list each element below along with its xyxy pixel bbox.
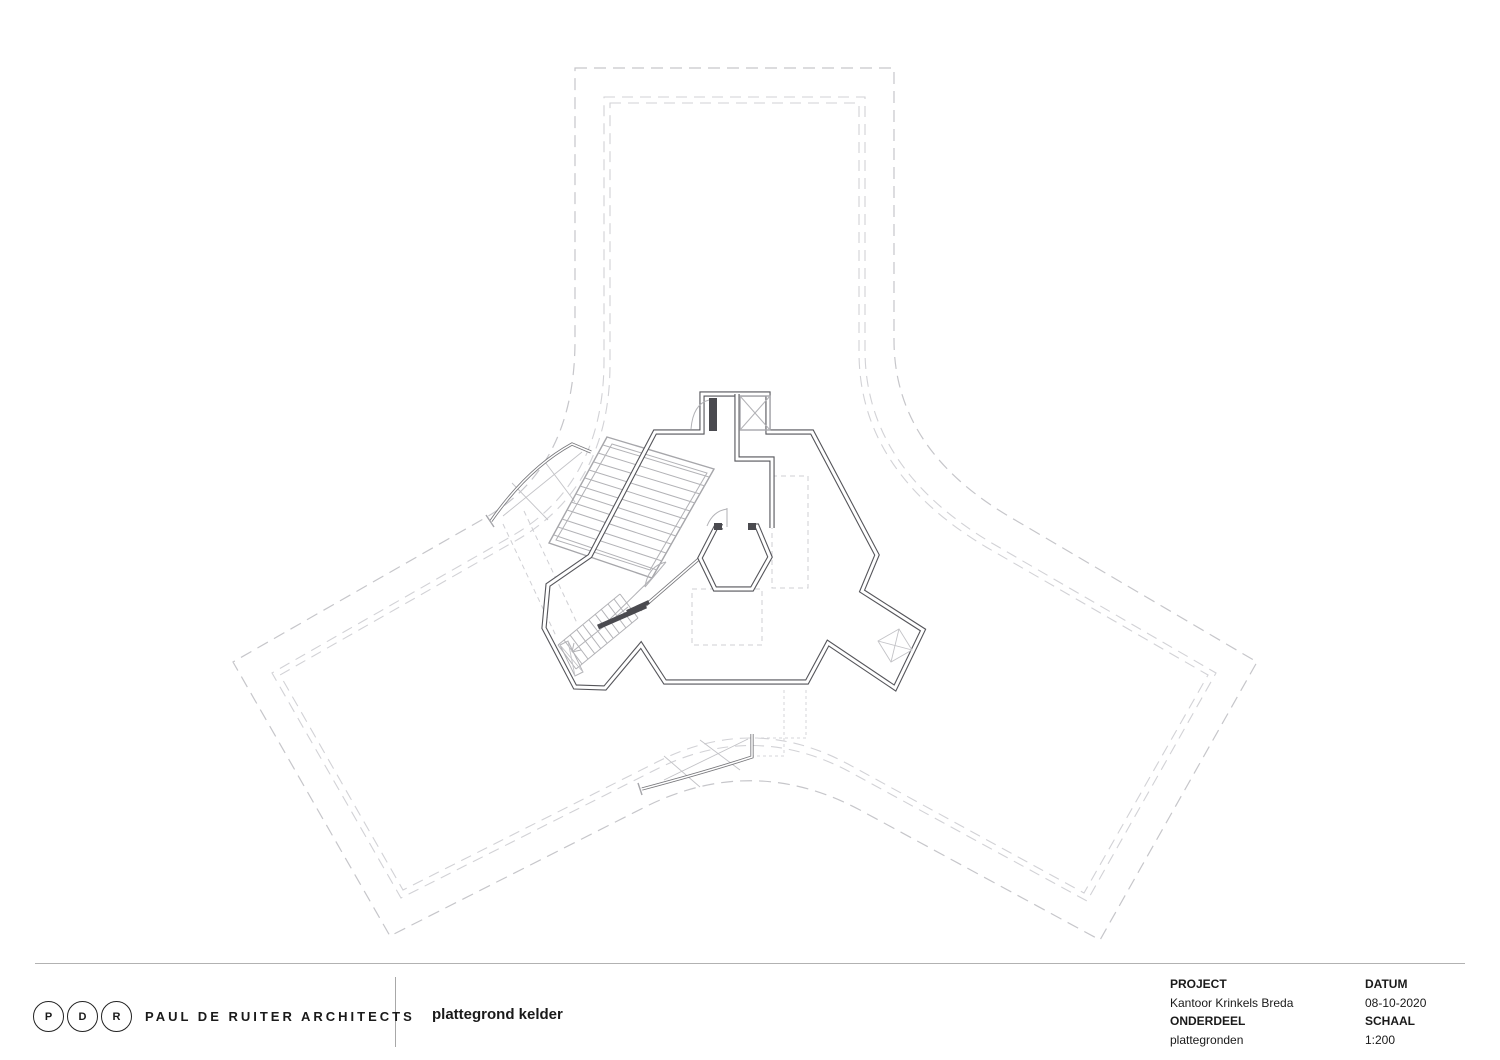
main-staircase	[549, 437, 714, 622]
drawing-sheet: P D R PAUL DE RUITER ARCHITECTS plattegr…	[0, 0, 1500, 1060]
stair-treads	[554, 445, 709, 570]
titleblock-right-column: DATUM 08-10-2020 SCHAAL 1:200	[1365, 975, 1426, 1049]
footer-rule	[35, 963, 1465, 964]
titleblock-schaal-label: SCHAAL	[1365, 1012, 1426, 1031]
skylight-x-box	[878, 629, 912, 662]
areaway-northwest	[486, 444, 591, 527]
titleblock-left-column: PROJECT Kantoor Krinkels Breda ONDERDEEL…	[1170, 975, 1293, 1049]
firm-name: PAUL DE RUITER ARCHITECTS	[145, 1009, 415, 1024]
logo-letter-d: D	[79, 1011, 87, 1023]
areaway-south	[638, 734, 752, 795]
titleblock-datum-label: DATUM	[1365, 975, 1426, 994]
logo-letter-p: P	[45, 1011, 52, 1023]
ground-floor-outline	[233, 68, 1257, 940]
door-jamb-right	[748, 523, 756, 530]
curved-retaining-wall	[491, 444, 591, 521]
ground-floor-outer-outline	[233, 68, 1257, 940]
void-outline-right	[772, 476, 808, 588]
titleblock-onderdeel-value: plattegronden	[1170, 1031, 1293, 1050]
bracing-line	[664, 739, 748, 780]
logo-circle-d: D	[67, 1001, 98, 1032]
floor-plan-drawing	[0, 0, 1500, 1060]
void-outline-bottom	[692, 589, 762, 645]
door-jamb-left	[714, 523, 722, 530]
drawing-title: plattegrond kelder	[432, 1006, 563, 1023]
logo-circle-r: R	[101, 1001, 132, 1032]
logo-circle-p: P	[33, 1001, 64, 1032]
titleblock-project-value: Kantoor Krinkels Breda	[1170, 994, 1293, 1013]
door-leaf	[709, 398, 717, 431]
titleblock-schaal-value: 1:200	[1365, 1031, 1426, 1050]
titleblock-datum-value: 08-10-2020	[1365, 994, 1426, 1013]
walkway-projection-line-1	[503, 524, 556, 636]
wall-end-cap	[638, 783, 642, 795]
firm-logo: P D R PAUL DE RUITER ARCHITECTS	[33, 1001, 415, 1032]
titleblock-project-label: PROJECT	[1170, 975, 1293, 994]
skylight-x-line	[891, 629, 899, 662]
hexagonal-core	[700, 508, 770, 589]
corridor-door-leaf	[645, 562, 666, 587]
walkway-projection-line-2	[524, 511, 577, 623]
direction-arrow	[572, 607, 628, 652]
corridor-wall	[598, 558, 700, 627]
ground-floor-inner-outline-2	[280, 103, 1208, 893]
projection-lines	[503, 476, 808, 756]
curved-retaining-wall-core	[491, 444, 591, 521]
logo-letter-r: R	[113, 1011, 121, 1023]
titleblock-onderdeel-label: ONDERDEEL	[1170, 1012, 1293, 1031]
stair-projection-right	[753, 690, 806, 738]
